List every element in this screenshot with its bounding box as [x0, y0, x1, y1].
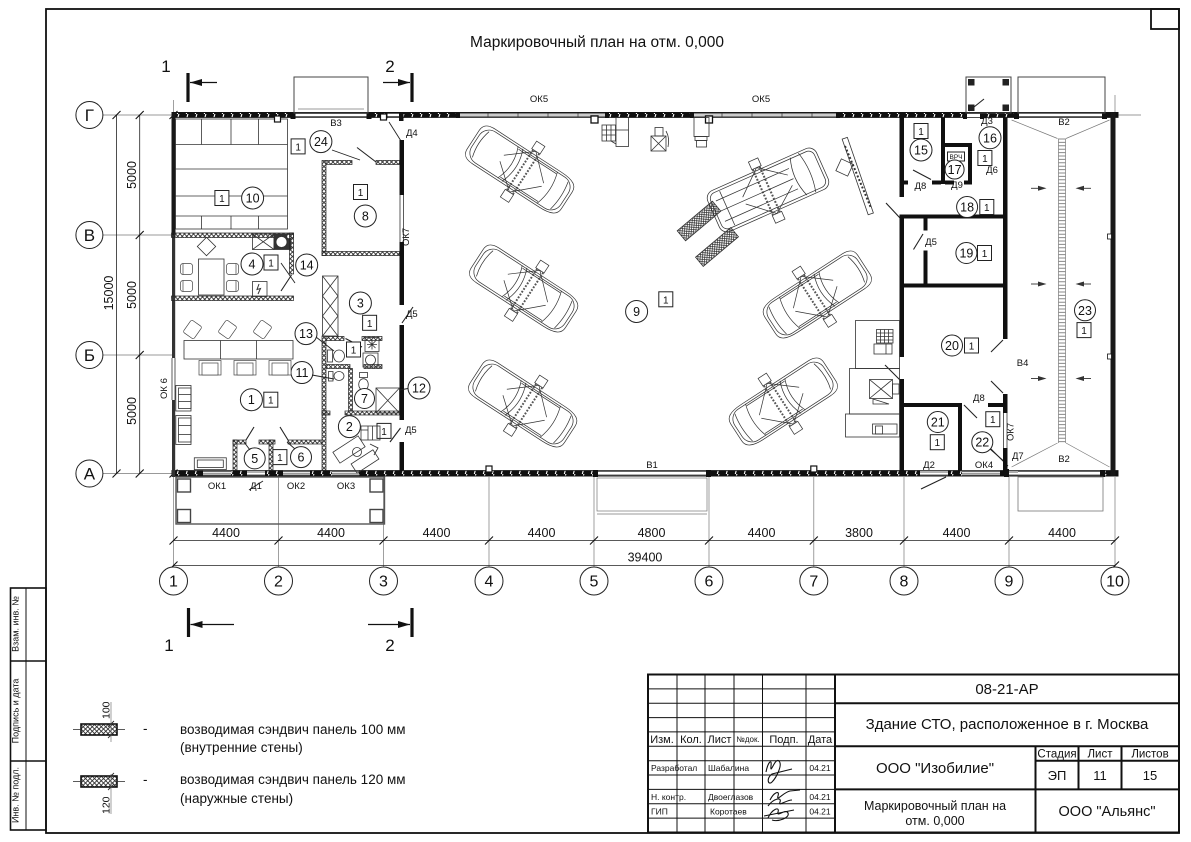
- svg-text:В2: В2: [1058, 117, 1070, 128]
- svg-text:1: 1: [982, 249, 988, 260]
- svg-text:отм. 0,000: отм. 0,000: [905, 814, 964, 828]
- svg-text:8: 8: [362, 210, 369, 224]
- svg-text:3800: 3800: [845, 526, 873, 540]
- svg-text:3: 3: [379, 574, 388, 591]
- svg-text:ООО "Изобилие": ООО "Изобилие": [876, 760, 994, 777]
- svg-text:ОК 6: ОК 6: [159, 378, 170, 399]
- svg-text:21: 21: [931, 416, 945, 430]
- svg-text:Б: Б: [84, 346, 95, 365]
- svg-text:1: 1: [918, 127, 924, 138]
- svg-text:Стадия: Стадия: [1037, 749, 1076, 761]
- svg-text:Д5: Д5: [405, 425, 417, 436]
- svg-text:1: 1: [984, 203, 990, 214]
- svg-text:ОК3: ОК3: [337, 481, 355, 492]
- svg-text:9: 9: [1005, 574, 1014, 591]
- svg-text:Г: Г: [85, 106, 94, 125]
- svg-text:Д8: Д8: [915, 181, 927, 192]
- svg-text:16: 16: [983, 131, 997, 145]
- svg-text:-: -: [143, 721, 148, 736]
- svg-text:13: 13: [299, 327, 313, 341]
- svg-text:ОК2: ОК2: [287, 481, 305, 492]
- svg-text:(наружные стены): (наружные стены): [180, 791, 293, 806]
- svg-text:10: 10: [1106, 574, 1124, 591]
- svg-text:7: 7: [809, 574, 818, 591]
- svg-text:Подп.: Подп.: [769, 734, 798, 746]
- svg-text:(внутренние стены): (внутренние стены): [180, 740, 303, 755]
- svg-text:Д5: Д5: [406, 309, 418, 320]
- svg-text:7: 7: [361, 392, 368, 406]
- svg-text:04.21: 04.21: [809, 763, 831, 773]
- svg-text:4: 4: [485, 574, 494, 591]
- svg-text:1: 1: [381, 427, 387, 438]
- svg-text:4400: 4400: [528, 526, 556, 540]
- svg-text:№док.: №док.: [736, 735, 759, 744]
- svg-text:ЭП: ЭП: [1048, 768, 1067, 783]
- svg-text:1: 1: [367, 319, 373, 330]
- svg-text:04.21: 04.21: [809, 792, 831, 802]
- svg-text:04.21: 04.21: [809, 807, 831, 817]
- svg-text:В4: В4: [1017, 358, 1029, 369]
- svg-text:17: 17: [948, 163, 962, 177]
- svg-text:Здание СТО, расположенное в г.: Здание СТО, расположенное в г. Москва: [866, 716, 1149, 733]
- svg-text:6: 6: [705, 574, 714, 591]
- svg-text:19: 19: [959, 247, 973, 261]
- svg-text:Двоеглазов: Двоеглазов: [708, 792, 754, 802]
- svg-text:1: 1: [969, 342, 975, 353]
- svg-text:5000: 5000: [125, 397, 139, 425]
- svg-text:Изм.: Изм.: [650, 734, 674, 746]
- svg-text:08-21-АР: 08-21-АР: [975, 681, 1038, 698]
- svg-text:11: 11: [1093, 768, 1107, 783]
- svg-text:11: 11: [296, 366, 309, 380]
- svg-text:18: 18: [960, 201, 974, 215]
- svg-text:ОК4: ОК4: [975, 460, 993, 471]
- svg-text:20: 20: [945, 339, 959, 353]
- svg-text:9: 9: [633, 305, 640, 319]
- svg-text:Маркировочный план на отм. 0,0: Маркировочный план на отм. 0,000: [470, 34, 724, 51]
- svg-text:-: -: [143, 772, 148, 787]
- svg-text:Д6: Д6: [986, 165, 998, 176]
- svg-text:В2: В2: [1058, 454, 1070, 465]
- svg-text:1: 1: [982, 154, 988, 165]
- svg-text:В3: В3: [330, 118, 342, 129]
- svg-text:1: 1: [268, 396, 274, 407]
- svg-text:5: 5: [251, 452, 258, 466]
- svg-text:12: 12: [412, 382, 426, 396]
- svg-text:Д4: Д4: [406, 128, 418, 139]
- svg-text:4400: 4400: [317, 526, 345, 540]
- svg-text:15: 15: [914, 144, 928, 158]
- svg-text:В: В: [84, 226, 95, 245]
- svg-text:Д5: Д5: [925, 237, 937, 248]
- svg-text:4400: 4400: [212, 526, 240, 540]
- svg-text:ОК5: ОК5: [530, 94, 548, 105]
- svg-text:8: 8: [900, 574, 909, 591]
- svg-text:4: 4: [249, 258, 256, 272]
- svg-text:5: 5: [590, 574, 599, 591]
- svg-text:В1: В1: [646, 460, 658, 471]
- svg-text:1: 1: [1081, 326, 1087, 337]
- svg-text:Д2: Д2: [923, 460, 935, 471]
- svg-text:2: 2: [274, 574, 283, 591]
- svg-text:Подпись и дата: Подпись и дата: [11, 679, 21, 744]
- svg-text:1: 1: [248, 393, 255, 407]
- svg-text:Д7: Д7: [1012, 451, 1024, 462]
- svg-text:ОК5: ОК5: [752, 94, 770, 105]
- svg-text:Кол.: Кол.: [680, 734, 702, 746]
- svg-text:2: 2: [385, 57, 394, 76]
- svg-text:1: 1: [161, 57, 170, 76]
- svg-text:6: 6: [298, 451, 305, 465]
- svg-text:возводимая сэндвич панель 120: возводимая сэндвич панель 120 мм: [180, 772, 406, 787]
- svg-text:Дата: Дата: [808, 734, 833, 746]
- svg-text:ОК1: ОК1: [208, 481, 226, 492]
- svg-text:1: 1: [277, 453, 283, 464]
- svg-text:1: 1: [663, 295, 669, 306]
- svg-text:ООО "Альянс": ООО "Альянс": [1059, 804, 1156, 820]
- svg-text:возводимая сэндвич панель 100: возводимая сэндвич панель 100 мм: [180, 722, 406, 737]
- svg-text:4400: 4400: [943, 526, 971, 540]
- svg-text:4400: 4400: [1048, 526, 1076, 540]
- svg-text:1: 1: [219, 194, 225, 205]
- svg-text:Шабалина: Шабалина: [708, 763, 749, 773]
- svg-text:4400: 4400: [423, 526, 451, 540]
- svg-text:Д3: Д3: [981, 116, 993, 127]
- svg-text:1: 1: [164, 636, 173, 655]
- svg-text:5000: 5000: [125, 161, 139, 189]
- svg-text:Д9: Д9: [951, 180, 963, 191]
- svg-text:Коротаев: Коротаев: [710, 807, 747, 817]
- svg-text:1: 1: [268, 259, 274, 270]
- svg-text:120: 120: [101, 796, 113, 814]
- svg-text:1: 1: [169, 574, 178, 591]
- svg-text:2: 2: [385, 636, 394, 655]
- svg-text:Разработал: Разработал: [651, 763, 697, 773]
- svg-text:4800: 4800: [638, 526, 666, 540]
- svg-text:100: 100: [101, 701, 113, 719]
- svg-text:ОК7: ОК7: [1006, 423, 1017, 441]
- svg-text:10: 10: [246, 192, 260, 206]
- svg-text:1: 1: [935, 438, 941, 449]
- svg-text:1: 1: [358, 188, 364, 199]
- svg-text:2: 2: [346, 420, 353, 434]
- svg-text:39400: 39400: [628, 551, 663, 565]
- svg-text:Д8: Д8: [973, 393, 985, 404]
- svg-text:14: 14: [300, 259, 314, 273]
- svg-text:15: 15: [1143, 768, 1157, 783]
- svg-text:ГИП: ГИП: [651, 807, 668, 817]
- svg-text:Инв. № подл.: Инв. № подл.: [11, 767, 21, 823]
- svg-text:15000: 15000: [102, 276, 116, 311]
- svg-text:Лист: Лист: [1088, 749, 1114, 761]
- svg-text:А: А: [84, 465, 96, 484]
- svg-text:Лист: Лист: [708, 734, 732, 746]
- svg-text:22: 22: [975, 436, 989, 450]
- svg-text:ОК7: ОК7: [401, 228, 412, 246]
- svg-text:4400: 4400: [748, 526, 776, 540]
- svg-text:1: 1: [990, 415, 996, 426]
- svg-text:Н. контр.: Н. контр.: [651, 792, 686, 802]
- svg-text:Листов: Листов: [1131, 749, 1168, 761]
- svg-text:24: 24: [314, 135, 328, 149]
- svg-text:Маркировочный план на: Маркировочный план на: [864, 799, 1006, 813]
- svg-text:1: 1: [351, 346, 357, 357]
- svg-text:3: 3: [357, 297, 364, 311]
- svg-text:Взам. инв. №: Взам. инв. №: [11, 596, 21, 652]
- svg-text:23: 23: [1078, 304, 1092, 318]
- svg-text:5000: 5000: [125, 281, 139, 309]
- svg-text:1: 1: [295, 142, 301, 153]
